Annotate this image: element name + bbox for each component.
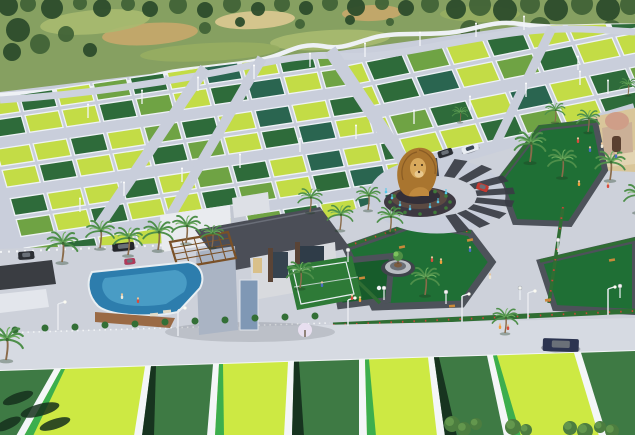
street-lamp-head [353, 296, 356, 299]
shrub [403, 211, 407, 215]
tree [199, 22, 211, 34]
pole-cap [299, 138, 301, 140]
street-lamp-head [613, 285, 616, 288]
street-lamp-head [183, 306, 186, 309]
person-body [499, 325, 501, 329]
water-jet [437, 201, 440, 204]
tree [197, 2, 213, 18]
pole-cap [579, 71, 581, 73]
tree-highlight [471, 419, 478, 426]
foreground-plot [215, 362, 288, 435]
bush [312, 313, 319, 320]
person-body [321, 283, 323, 287]
ornament-sphere [377, 286, 381, 290]
foreground-plot [365, 358, 437, 435]
person-head [577, 137, 579, 139]
water-jet [399, 204, 402, 207]
tree [30, 34, 50, 54]
shrub [418, 212, 422, 216]
entrance-glass [240, 280, 258, 330]
person-body [577, 139, 579, 143]
aerial-township-render [0, 0, 635, 435]
pole-cap [525, 83, 527, 85]
water-jet [409, 208, 412, 211]
pole-cap [577, 56, 579, 58]
tree-highlight [521, 425, 528, 432]
pole-cap [607, 80, 609, 82]
person-body [351, 296, 353, 300]
bush [132, 321, 139, 328]
pole-cap [355, 125, 357, 127]
shrub [433, 190, 437, 194]
bush [102, 322, 109, 329]
wood-column [268, 248, 273, 282]
pole-cap [123, 182, 125, 184]
shrub [388, 200, 392, 204]
person-body [469, 248, 471, 252]
person-body [431, 258, 433, 262]
water-jet [445, 192, 448, 195]
tree-highlight [578, 424, 587, 433]
car-cabin [22, 252, 30, 257]
person-head [321, 281, 323, 283]
pole-cap [141, 90, 143, 92]
bush [282, 314, 289, 321]
person-head [499, 323, 501, 325]
person-body [601, 144, 603, 148]
person-head [359, 296, 361, 298]
tree-highlight [606, 425, 614, 433]
water-jet [385, 191, 388, 194]
bush [252, 315, 259, 322]
lamp-head [556, 238, 560, 242]
person-body [489, 275, 491, 279]
pole-cap [469, 96, 471, 98]
water-jet [391, 197, 394, 200]
person-head [589, 146, 591, 148]
tree [142, 1, 158, 17]
person-head [489, 273, 491, 275]
person-head [121, 293, 123, 295]
tree-highlight [564, 422, 572, 430]
person-head [440, 258, 442, 260]
tree [398, 0, 414, 16]
pole-cap [197, 77, 199, 79]
tree [6, 18, 30, 42]
person-head [615, 152, 617, 154]
feature-tree-light [394, 252, 399, 257]
pole-cap [475, 23, 477, 25]
person-body [507, 326, 509, 330]
street-lamp-head [533, 289, 536, 292]
lamp-head [444, 290, 448, 294]
lamp-head [382, 286, 386, 290]
person-head [601, 142, 603, 144]
tree [299, 1, 313, 15]
person-body [578, 182, 580, 186]
pole-cap [239, 154, 241, 156]
temple-dome [605, 112, 629, 130]
tree-highlight [445, 417, 454, 426]
pole-cap [419, 32, 421, 34]
pole-cap [87, 104, 89, 106]
pole-cap [309, 53, 311, 55]
scene-canvas [0, 0, 635, 435]
bush [222, 317, 229, 324]
tree [58, 26, 74, 42]
tree [386, 18, 394, 26]
person-head [607, 182, 609, 184]
pole-cap [181, 168, 183, 170]
person-head [351, 294, 353, 296]
person-head [137, 297, 139, 299]
bush [162, 319, 169, 326]
tree [83, 43, 97, 57]
bush [42, 325, 49, 332]
lion-nose [418, 171, 420, 173]
person-body [137, 299, 139, 303]
person-body [607, 184, 609, 188]
pole-cap [364, 43, 366, 45]
lamp-head [518, 286, 522, 290]
tree [295, 19, 305, 29]
car-cabin [552, 340, 570, 348]
tree [235, 17, 245, 27]
person-head [469, 246, 471, 248]
shrub [444, 194, 448, 198]
tree [251, 2, 265, 16]
person-body [440, 260, 442, 264]
tree-highlight [458, 423, 466, 431]
water-jet [429, 206, 432, 209]
street-lamp-head [63, 300, 66, 303]
lion-eye [421, 164, 423, 166]
pole-cap [79, 198, 81, 200]
pole-cap [253, 65, 255, 67]
person-head [507, 324, 509, 326]
bench [449, 304, 455, 307]
person-body [615, 154, 617, 158]
tree [345, 15, 355, 25]
person-head [431, 256, 433, 258]
shrub [448, 200, 452, 204]
bush [192, 318, 199, 325]
person-body [359, 298, 361, 302]
lion-eye [414, 164, 416, 166]
lamp-head [346, 248, 350, 252]
lamp-head [618, 284, 622, 288]
street-lamp-head [467, 292, 470, 295]
pole-cap [523, 16, 525, 18]
pole-cap [413, 110, 415, 112]
person-head [578, 180, 580, 182]
person-body [589, 148, 591, 152]
bush [72, 324, 79, 331]
lit-window [253, 258, 262, 273]
tree [3, 43, 21, 61]
tree-highlight [506, 420, 515, 429]
shrub [433, 211, 437, 215]
shrub [444, 206, 448, 210]
tree-highlight [595, 422, 602, 429]
temple-door [612, 136, 621, 152]
person-body [121, 295, 123, 299]
